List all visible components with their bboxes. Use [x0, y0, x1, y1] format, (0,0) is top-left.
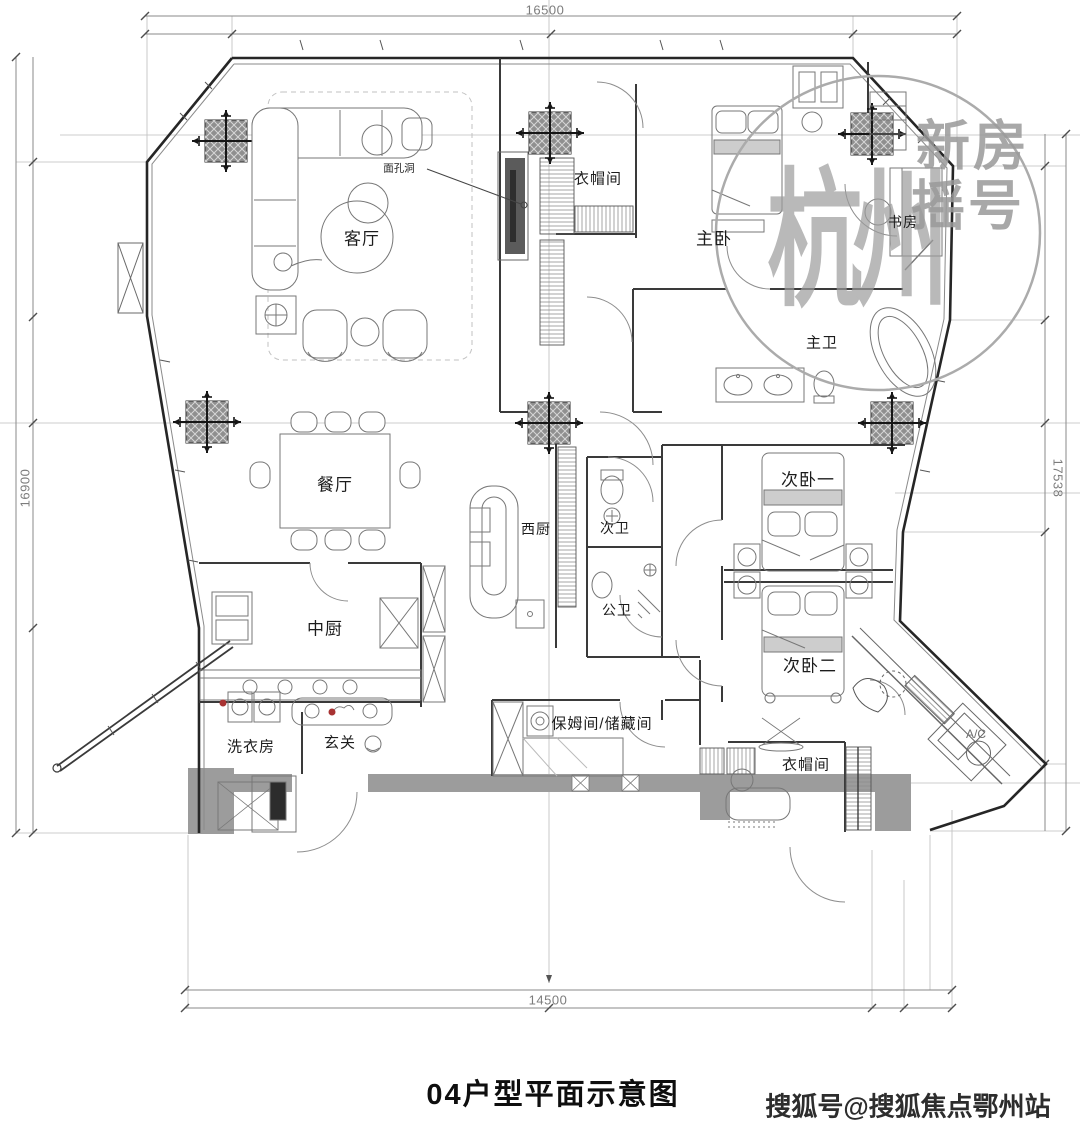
- wall-hole-annotation: 面孔洞: [383, 161, 415, 176]
- room-label-public-bath: 公卫: [602, 600, 632, 620]
- tv-wall: [498, 152, 528, 260]
- page-title: 04户型平面示意图: [426, 1071, 679, 1113]
- room-label-west-kitchen: 西厨: [521, 519, 551, 539]
- dim-top: 16500: [526, 3, 565, 18]
- floorplan-page: 客厅 衣帽间 主卧 书房 主卫 餐厅 西厨 次卫 公卫 次卧一 次卧二 中厨 洗…: [0, 0, 1080, 1131]
- room-label-master-bath: 主卫: [806, 332, 838, 353]
- furniture-baths: [592, 470, 660, 618]
- furniture-bedroom2: [734, 572, 872, 703]
- dim-bottom: 14500: [529, 993, 568, 1008]
- sohu-watermark: 搜狐号@搜狐焦点鄂州站: [765, 1087, 1050, 1124]
- room-label-laundry: 洗衣房: [227, 736, 275, 757]
- room-label-cloak-bottom: 衣帽间: [782, 754, 830, 775]
- dim-left: 16900: [18, 469, 33, 508]
- stamp-word-2: 摇号: [911, 162, 1025, 241]
- room-label-living: 客厅: [344, 225, 380, 250]
- room-label-ac: A/C: [966, 727, 986, 741]
- room-label-nanny: 保姆间/储藏间: [551, 713, 652, 734]
- room-label-kitchen: 中厨: [307, 615, 343, 640]
- room-label-bedroom2: 次卧二: [783, 652, 837, 677]
- room-label-bedroom1: 次卧一: [781, 466, 835, 491]
- furniture-foyer-laundry: [218, 692, 392, 832]
- furniture-west-kitchen: [470, 486, 544, 628]
- room-label-master: 主卧: [696, 225, 732, 250]
- room-label-second-bath: 次卫: [600, 518, 630, 538]
- room-label-dining: 餐厅: [317, 471, 353, 496]
- dim-right: 17538: [1051, 459, 1066, 498]
- room-label-foyer: 玄关: [324, 732, 356, 753]
- room-label-study: 书房: [888, 212, 918, 232]
- room-label-cloak-top: 衣帽间: [574, 168, 622, 189]
